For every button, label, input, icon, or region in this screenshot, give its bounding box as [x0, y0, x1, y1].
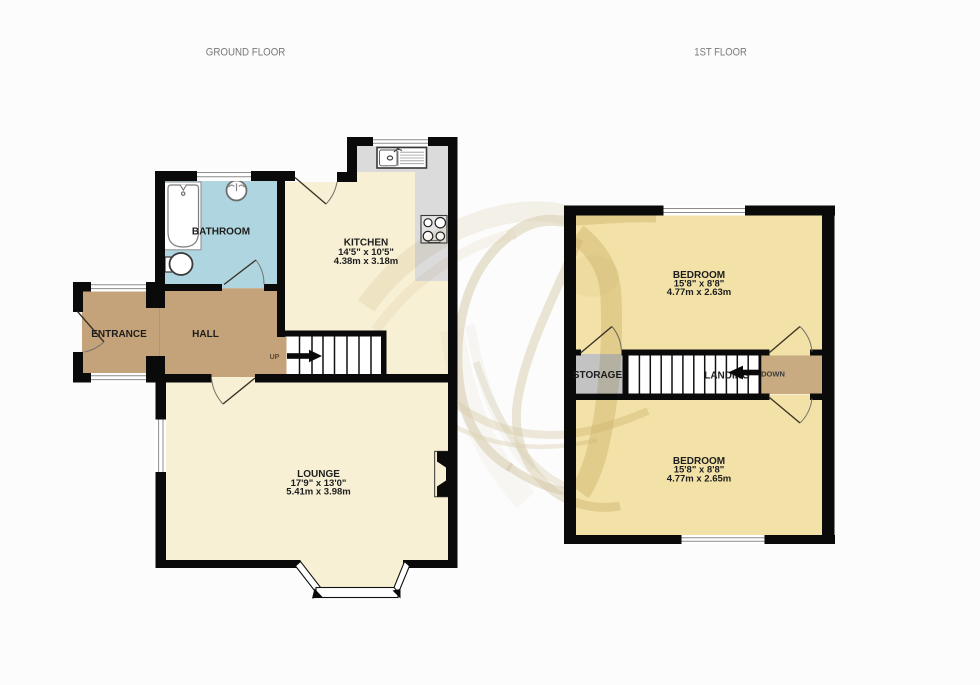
svg-text:GROUND FLOOR: GROUND FLOOR — [206, 47, 285, 59]
svg-text:1ST FLOOR: 1ST FLOOR — [694, 46, 747, 58]
svg-text:DOWN: DOWN — [761, 370, 785, 379]
svg-text:5.41m x 3.98m: 5.41m x 3.98m — [286, 487, 350, 498]
svg-text:HALL: HALL — [192, 329, 219, 340]
svg-text:ENTRANCE: ENTRANCE — [91, 329, 147, 340]
svg-text:BATHROOM: BATHROOM — [192, 227, 250, 238]
svg-text:4.77m x 2.65m: 4.77m x 2.65m — [667, 474, 731, 485]
svg-text:4.77m x 2.63m: 4.77m x 2.63m — [667, 287, 731, 298]
svg-text:UP: UP — [270, 354, 280, 361]
